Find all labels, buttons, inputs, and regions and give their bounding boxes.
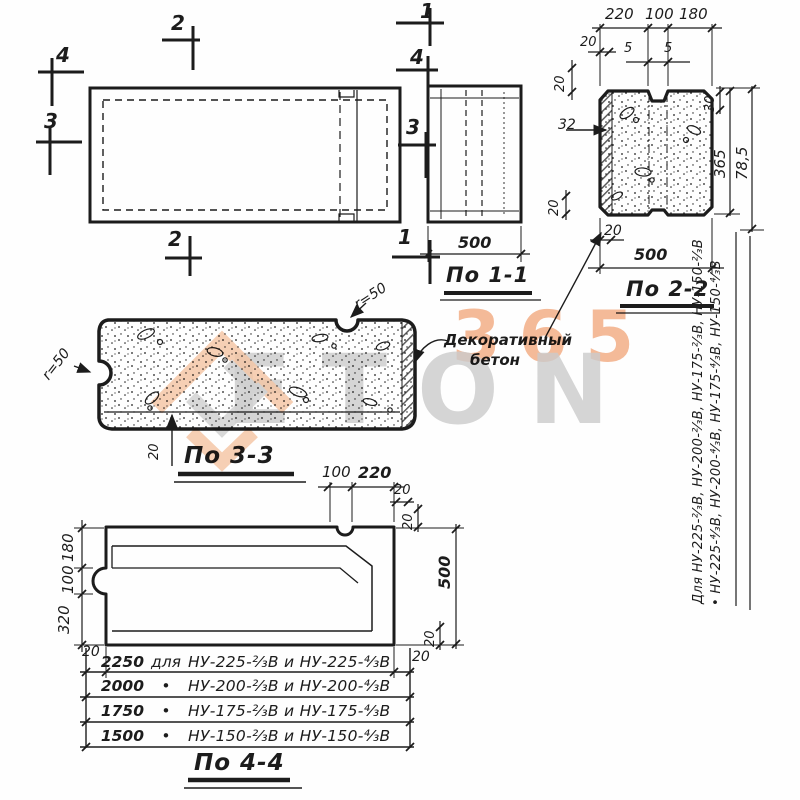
dim-20-s44-bottom-right: 20 [412, 650, 430, 665]
section-3-3-outline [99, 320, 415, 429]
table-row: 2250 для НУ-225-²⁄₃В и НУ-225-⁴⁄₃В [90, 651, 408, 672]
dim-20-s22-lb: 20 [548, 199, 562, 216]
section-2-2-outline [600, 91, 712, 215]
dim-20-s44-br: 20 [424, 630, 438, 647]
decorative-concrete-label-1: Декоративный [444, 332, 572, 349]
table-row-value: 2000 [90, 677, 144, 695]
table-row-label: НУ-225-²⁄₃В и НУ-225-⁴⁄₃В [188, 653, 408, 671]
section-3-3-view [99, 320, 415, 429]
table-row-label: НУ-150-²⁄₃В и НУ-150-⁴⁄₃В [188, 727, 408, 745]
table-row: 1750 • НУ-175-²⁄₃В и НУ-175-⁴⁄₃В [90, 700, 408, 721]
dim-20-s22-bottom: 20 [604, 224, 622, 239]
dim-220-s44: 220 [358, 464, 391, 482]
cut-mark-4-left: 4 [56, 44, 70, 66]
table-row-sep: для [144, 653, 188, 671]
dim-30-s22: 30 [704, 95, 718, 112]
plan-outline [90, 88, 400, 222]
cut-mark-4-right: 4 [410, 46, 424, 68]
table-row-value: 2250 [90, 653, 144, 671]
side-note-line1: Для НУ-225-²⁄₃В, НУ-200-²⁄₃В, НУ-175-²⁄₃… [692, 239, 706, 604]
table-row: 1500 • НУ-150-²⁄₃В и НУ-150-⁴⁄₃В [90, 725, 408, 746]
cut-mark-1-bottom: 1 [398, 226, 412, 248]
decorative-layer-hatch [600, 91, 612, 215]
dim-20-s22-top: 20 [580, 36, 597, 50]
cut-mark-3-left: 3 [44, 110, 58, 132]
table-row: 2000 • НУ-200-²⁄₃В и НУ-200-⁴⁄₃В [90, 675, 408, 696]
dim-500-s44: 500 [436, 556, 454, 589]
section-4-4-view [93, 527, 394, 645]
dim-100-s44-left: 100 [60, 565, 77, 594]
table-row-sep: • [144, 677, 188, 695]
dim-20-s33: 20 [148, 443, 162, 460]
cut-mark-2-top: 2 [171, 12, 185, 34]
dim-20-s44-tr2: 20 [402, 513, 416, 530]
cut-mark-3-right: 3 [406, 116, 420, 138]
plan-view [90, 88, 400, 222]
section-3-3-label: По 3-3 [184, 444, 275, 469]
dim-100-s22: 100 [645, 6, 674, 23]
dim-78-5: 78,5 [734, 147, 751, 180]
cut-mark-2-bottom: 2 [168, 228, 182, 250]
dim-180-s22: 180 [679, 6, 708, 23]
section-2-2-view [600, 91, 712, 215]
section-4-4-outline [93, 527, 394, 645]
dim-20-s22-left: 20 [554, 75, 568, 92]
section-cut-marks [36, 8, 444, 284]
dim-5-right: 5 [664, 42, 672, 56]
table-row-sep: • [144, 727, 188, 745]
dim-220: 220 [605, 6, 634, 23]
decorative-concrete-label-2: бетон [470, 352, 520, 369]
table-row-sep: • [144, 702, 188, 720]
dim-365: 365 [712, 149, 729, 178]
table-row-value: 1750 [90, 702, 144, 720]
dim-32-s22: 32 [558, 118, 576, 133]
table-row-value: 1500 [90, 727, 144, 745]
section-4-4-label: По 4-4 [194, 751, 285, 776]
dim-180-s44: 180 [60, 533, 77, 562]
dim-20-s44-tr1: 20 [394, 484, 411, 498]
decorative-edge-hatch [402, 322, 413, 427]
side-note-line2: • НУ-225-⁴⁄₃В, НУ-200-⁴⁄₃В, НУ-175-⁴⁄₃В,… [710, 260, 724, 606]
table-row-label: НУ-175-²⁄₃В и НУ-175-⁴⁄₃В [188, 702, 408, 720]
dim-5-left: 5 [624, 42, 632, 56]
section-1-1-label: По 1-1 [446, 264, 529, 287]
blueprint-page: 2 2 4 3 1 4 3 1 500 По 1-1 220 100 180 2… [0, 0, 800, 800]
dim-500-s22: 500 [634, 246, 667, 264]
dim-100-s44: 100 [322, 464, 351, 481]
cut-mark-1-top: 1 [420, 0, 434, 22]
dim-320-s44: 320 [56, 605, 73, 634]
table-row-label: НУ-200-²⁄₃В и НУ-200-⁴⁄₃В [188, 677, 408, 695]
dim-500-s11: 500 [458, 234, 491, 252]
